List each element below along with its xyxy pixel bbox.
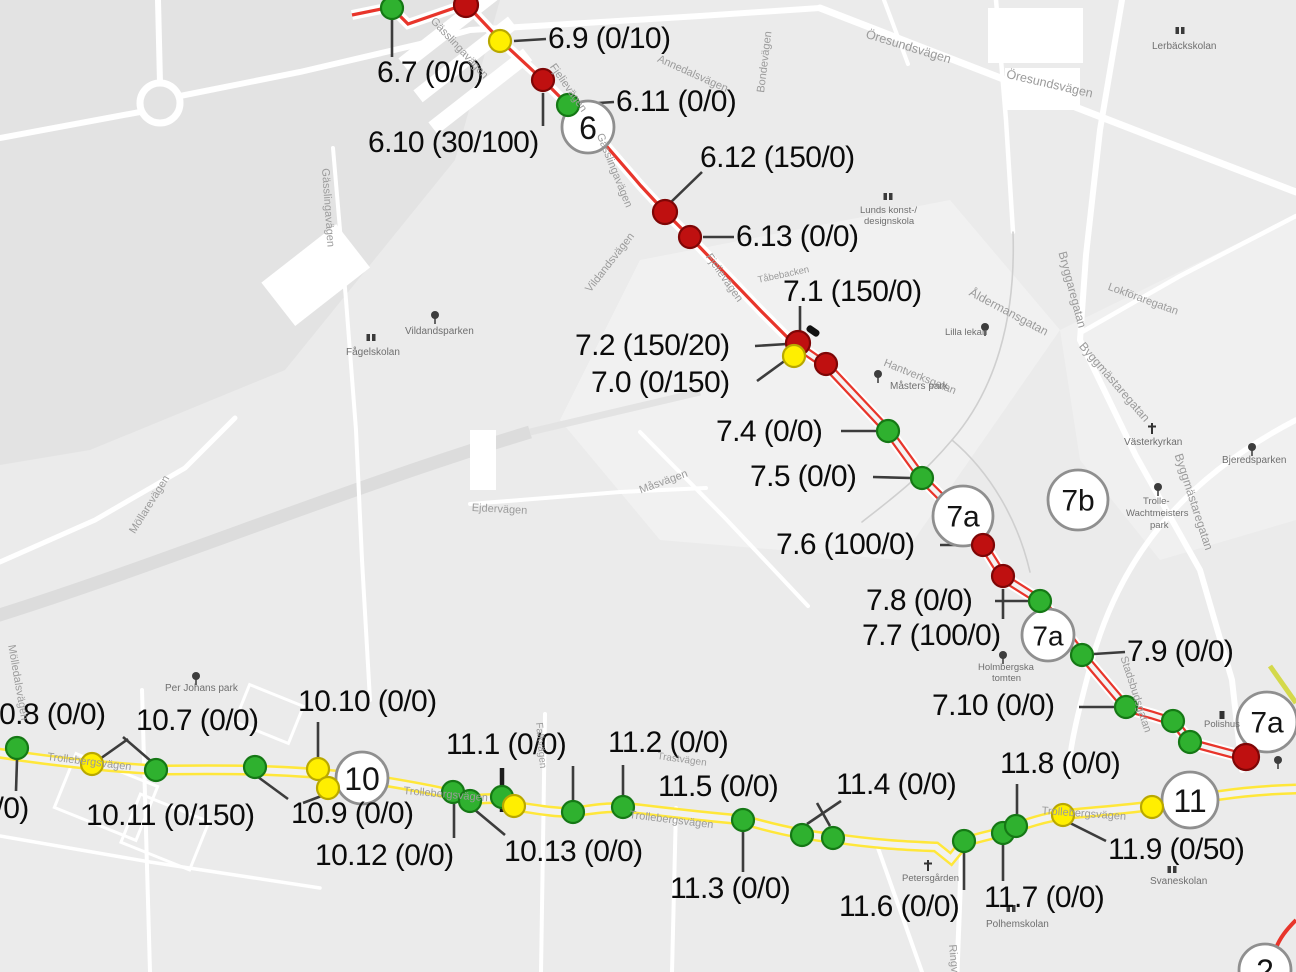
leader-line xyxy=(873,477,910,478)
station-label: 10.9 (0/0) xyxy=(291,799,413,829)
station-dot[interactable] xyxy=(1029,590,1051,612)
station-label: 7.6 (100/0) xyxy=(776,530,915,560)
route-badge-label: 7a xyxy=(946,501,980,534)
station-dot[interactable] xyxy=(791,824,813,846)
poi-label: Bjeredsparken xyxy=(1222,456,1286,466)
station-label: 6.9 (0/10) xyxy=(548,24,670,54)
station-dot[interactable] xyxy=(1005,815,1027,837)
station-dot[interactable] xyxy=(562,801,584,823)
station-label: 10.10 (0/0) xyxy=(298,687,437,717)
station-label: 11.5 (0/0) xyxy=(658,772,778,802)
poi-label: Svaneskolan xyxy=(1150,877,1207,887)
station-label: 7.1 (150/0) xyxy=(783,277,922,307)
station-dot[interactable] xyxy=(145,759,167,781)
station-dot[interactable] xyxy=(783,345,805,367)
station-dot[interactable] xyxy=(822,827,844,849)
poi-label: Wachtmeisters xyxy=(1126,509,1188,519)
station-label: 6.12 (150/0) xyxy=(700,143,855,173)
station-label: 6.13 (0/0) xyxy=(736,222,858,252)
station-dot[interactable] xyxy=(992,565,1014,587)
route-badge-label: 7a xyxy=(1250,707,1284,740)
poi-label: park xyxy=(1150,521,1168,531)
station-dot[interactable] xyxy=(953,830,975,852)
station-label: (0/0) xyxy=(0,794,29,824)
station-label: 10.7 (0/0) xyxy=(136,706,258,736)
station-label: 10.12 (0/0) xyxy=(315,841,454,871)
poi-label: Lunds konst-/ xyxy=(860,206,917,216)
station-dot[interactable] xyxy=(1179,731,1201,753)
poi-label: Lilla lekan xyxy=(945,328,987,338)
station-dot[interactable] xyxy=(1233,744,1259,770)
poi-label: Fågelskolan xyxy=(346,348,400,358)
station-dot[interactable] xyxy=(454,0,478,17)
station-dot[interactable] xyxy=(815,353,837,375)
station-dot[interactable] xyxy=(972,534,994,556)
poi-label: Vildandsparken xyxy=(405,327,474,337)
station-dot[interactable] xyxy=(503,795,525,817)
poi-label: Per Johans park xyxy=(165,684,238,694)
route-badge-7b[interactable]: 7b xyxy=(1048,470,1108,530)
station-label: 7.4 (0/0) xyxy=(716,417,822,447)
station-label: 7.5 (0/0) xyxy=(750,462,856,492)
station-label: 7.9 (0/0) xyxy=(1127,637,1233,667)
poi-label: Polishus xyxy=(1204,720,1240,730)
station-label: 11.8 (0/0) xyxy=(1000,749,1120,779)
route-badge-label: 10 xyxy=(344,761,380,797)
route-badge-7a[interactable]: 7a xyxy=(1022,609,1074,661)
station-dot[interactable] xyxy=(911,467,933,489)
station-dot[interactable] xyxy=(6,737,28,759)
route-badge-label: 7b xyxy=(1061,485,1094,518)
station-label: 7.10 (0/0) xyxy=(932,691,1054,721)
route-badge-label: 11 xyxy=(1173,783,1206,819)
station-dot[interactable] xyxy=(653,200,677,224)
station-dot[interactable] xyxy=(1162,710,1184,732)
station-dot[interactable] xyxy=(1071,644,1093,666)
map-canvas[interactable]: 67a7b7a7a10112 6.9 (0/10)6.7 (0/0)6.11 (… xyxy=(0,0,1296,972)
station-label: 11.6 (0/0) xyxy=(839,892,959,922)
station-label: 11.7 (0/0) xyxy=(984,883,1104,913)
station-label: 7.8 (0/0) xyxy=(866,586,972,616)
station-label: 7.7 (100/0) xyxy=(862,621,1001,651)
leader-line xyxy=(16,760,17,791)
station-label: 11.3 (0/0) xyxy=(670,874,790,904)
station-label: 6.10 (30/100) xyxy=(368,128,539,158)
station-label: 11.1 (0/0) xyxy=(446,730,566,760)
station-label: 7.0 (0/150) xyxy=(591,368,730,398)
route-badge-label: 6 xyxy=(579,110,597,146)
poi-label: Måsters park xyxy=(890,382,948,392)
poi-label: tomten xyxy=(992,674,1021,684)
police-icon xyxy=(1220,711,1225,719)
route-badge-11[interactable]: 11 xyxy=(1162,772,1218,828)
poi-label: Trolle- xyxy=(1143,497,1170,507)
poi-label: Polhemskolan xyxy=(986,920,1049,930)
poi-label: Lerbäckskolan xyxy=(1152,42,1216,52)
poi-label: Petersgården xyxy=(902,874,959,884)
poi-label: Holmbergska xyxy=(978,663,1034,673)
station-label: 11.9 (0/50) xyxy=(1108,835,1244,865)
station-dot[interactable] xyxy=(877,420,899,442)
station-label: 10.13 (0/0) xyxy=(504,837,643,867)
poi-label: designskola xyxy=(864,217,914,227)
station-dot[interactable] xyxy=(244,756,266,778)
station-label: 10.11 (0/150) xyxy=(86,801,254,831)
route-badge-label: 2 xyxy=(1256,953,1274,972)
station-dot[interactable] xyxy=(1141,796,1163,818)
station-label: 7.2 (150/20) xyxy=(575,331,730,361)
station-dot[interactable] xyxy=(732,809,754,831)
route-badge-label: 7a xyxy=(1032,621,1064,652)
poi-label: Västerkyrkan xyxy=(1124,438,1182,448)
station-dot[interactable] xyxy=(381,0,403,19)
station-dot[interactable] xyxy=(317,777,339,799)
station-label: 11.4 (0/0) xyxy=(836,770,956,800)
station-dot[interactable] xyxy=(489,30,511,52)
station-dot[interactable] xyxy=(679,226,701,248)
